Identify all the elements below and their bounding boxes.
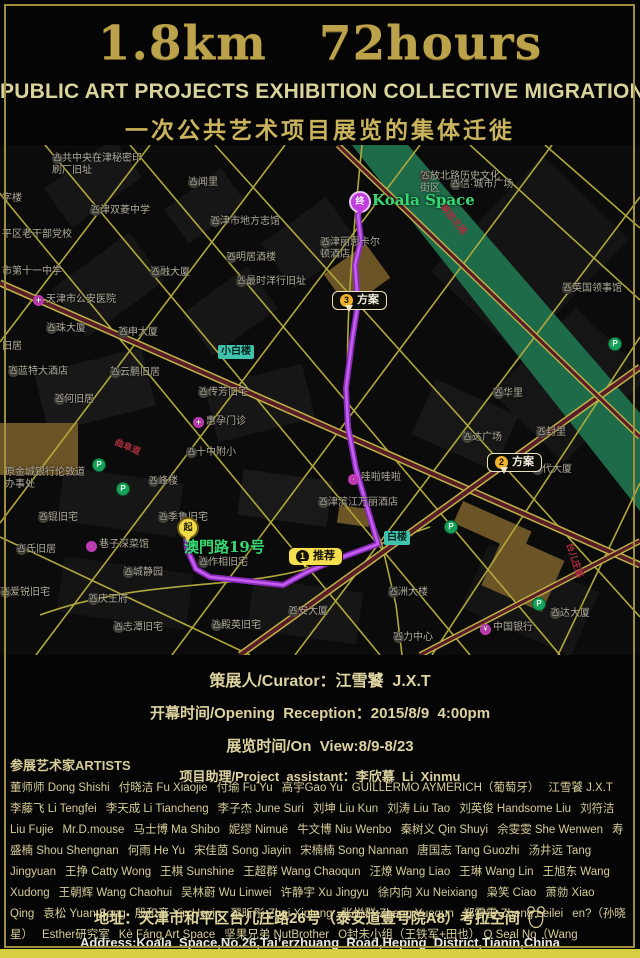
poi-icon: 凸	[211, 620, 222, 631]
map-poi-label: 凸张作相旧宅	[198, 557, 248, 569]
artist-name: 刘涛 Liu Tao	[387, 803, 450, 815]
artist-name: 高宇Gao Yu	[282, 782, 343, 794]
artist-name: 王朝辉 Wang Chaohui	[59, 887, 172, 899]
map-poi-label: 凸曹锟旧宅	[38, 512, 78, 524]
artist-name: 王琳 Wang Lin	[459, 866, 533, 878]
map-poi-label: 凸达闻里	[188, 177, 218, 189]
artist-name: 徐内向 Xu Neixiang	[378, 887, 478, 899]
map-poi-label: 市第十一中学	[2, 266, 62, 278]
marker-plan-2: 2 方案	[487, 453, 542, 472]
poi-icon: 凸	[16, 544, 27, 555]
artist-name: 秦树义 Qin Shuyi	[401, 824, 489, 836]
artist-name: 宋楠楠 Song Nannan	[300, 845, 408, 857]
artist-name: 王挣 Catty Wong	[65, 866, 151, 878]
map-poi-label: 凸天津双菱中学	[90, 205, 150, 217]
address-chinese: 地址：天津市和平区台儿庄路26号（泰安道壹号院A8）考拉空间	[0, 905, 640, 929]
exhibition-title: 1.8km 72hours	[0, 0, 640, 71]
artist-name: 佘雯雯 She Wenwen	[497, 824, 603, 836]
parking-icon: P	[92, 458, 106, 472]
poi-icon: 凸	[186, 447, 197, 458]
map-poi-label: 凸云峰楼	[148, 476, 178, 488]
map-poi-label: 凸茂申大厦	[118, 327, 158, 339]
poi-icon: 凸	[236, 276, 247, 287]
poi-icon: 凸	[198, 387, 209, 398]
curator-line: 策展人/Curator：江雪饕 J.X.T	[0, 667, 640, 691]
poi-icon: 凸	[288, 606, 299, 617]
subtitle-english: PUBLIC ART PROJECTS EXHIBITION COLLECTIV…	[0, 80, 640, 104]
med-icon: +	[193, 417, 204, 428]
artist-name: 妮缪 Nimuë	[229, 824, 288, 836]
map-poi-label: 凸新云鹏旧居	[110, 367, 160, 379]
map-poi-label: 凸明华里	[493, 388, 523, 400]
map-poi-label: 字楼	[2, 193, 22, 205]
map-poi-label: ¥中国银行	[480, 622, 533, 635]
artist-name: 宋佳茵 Song Jiayin	[194, 845, 291, 857]
artist-name: 刘英俊 Handsome Liu	[459, 803, 571, 815]
poi-icon: 凸	[8, 366, 19, 377]
poi-icon: 凸	[38, 512, 49, 523]
map-labels: 凸中共中央在津秘密印刷厂旧址凸达闻里凸解放北路历史文化街区凸中信·城市广场字楼凸…	[0, 145, 640, 655]
poi-icon: 凸	[536, 427, 547, 438]
destination-pin: 终	[349, 191, 371, 213]
map-poi-label: 平区老干部党校	[2, 229, 72, 241]
poi-icon: 凸	[462, 432, 473, 443]
map-poi-label: ·哇啦哇啦	[348, 472, 401, 485]
marker-plan-2-label: 方案	[512, 456, 534, 469]
map-poi-label: 凸海珠大厦	[46, 323, 86, 335]
poi-icon: 凸	[226, 252, 237, 263]
poi-icon: 凸	[150, 267, 161, 278]
food-icon: ·	[86, 541, 97, 552]
artist-name: 牛文博 Niu Wenbo	[297, 824, 391, 836]
poi-icon: 凸	[54, 394, 65, 405]
marker-plan-3-number: 3	[340, 294, 353, 307]
marker-recommended-number: 1	[296, 550, 309, 563]
marker-recommended: 1 推荐	[288, 547, 343, 566]
artist-name: 汪燎 Wang Liao	[369, 866, 450, 878]
map-poi-label: 凸富力中心	[393, 632, 433, 644]
poi-icon: 凸	[52, 153, 63, 164]
poi-icon: 凸	[318, 497, 329, 508]
koala-icon	[526, 905, 546, 929]
artist-name: 付瑜 Fu Yu	[217, 782, 273, 794]
header: 1.8km 72hours PUBLIC ART PROJECTS EXHIBI…	[0, 0, 640, 145]
map-poi-label: ·巷子深菜馆	[86, 539, 149, 552]
poi-icon: 凸	[450, 179, 461, 190]
poi-icon: 凸	[188, 177, 199, 188]
poi-icon: 凸	[148, 476, 159, 487]
map-poi-label: 凸中信·城市广场	[450, 179, 513, 191]
map-poi-label: 凸富蓝特大酒店	[8, 366, 68, 378]
map-poi-label: +天津市公安医院	[33, 294, 116, 306]
street-name-label: 曲阜道	[113, 435, 143, 458]
map-poi-label: 凸开封里	[536, 427, 566, 439]
poi-icon: 凸	[393, 632, 404, 643]
poi-icon: 凸	[113, 622, 124, 633]
artist-name: 付晓洁 Fu Xiaojie	[119, 782, 208, 794]
parking-icon: P	[444, 520, 458, 534]
poi-icon: 凸	[493, 388, 504, 399]
map-poi-label: 凸孙殿英旧宅	[211, 620, 261, 632]
parking-icon: P	[608, 337, 622, 351]
artist-name: 李天成 Li Tiancheng	[106, 803, 209, 815]
address-english: Address:Koala Space,No.26,Tai’erzhuang R…	[0, 935, 640, 950]
artist-name: 李子杰 June Suri	[218, 803, 304, 815]
map-poi-label: 凸汇融大厦	[150, 267, 190, 279]
map-poi-label: 凸津城静园	[123, 567, 163, 579]
map-poi-label: 凸孙传芳旧宅	[198, 387, 248, 399]
artist-name: 王超群 Wang Chaoqun	[243, 866, 360, 878]
marker-recommended-label: 推荐	[313, 550, 335, 563]
bank-icon: ¥	[480, 624, 491, 635]
map-poi-label: 凸李氏旧居	[16, 544, 56, 556]
subtitle-chinese: 一次公共艺术项目展览的集体迁徙	[0, 111, 640, 145]
map-poi-label: 凸天津滨江万丽酒店	[318, 497, 398, 509]
artist-name: 李藤飞 Li Tengfei	[10, 803, 97, 815]
map-poi-label: 凸天津市地方志馆	[210, 216, 280, 228]
address-section: 地址：天津市和平区台儿庄路26号（泰安道壹号院A8）考拉空间 Address:K…	[0, 905, 640, 950]
map-poi-label: 凸中共中央在津秘密印刷厂旧址	[52, 153, 144, 176]
food-icon: ·	[348, 474, 359, 485]
map-poi-label: 凸二十中附小	[186, 447, 236, 459]
bottom-accent-bar	[0, 949, 640, 958]
station-label: 白楼	[384, 531, 410, 545]
origin-pin: 起	[177, 517, 199, 539]
artists-heading: 参展艺术家ARTISTS	[10, 755, 630, 774]
route-map: 凸中共中央在津秘密印刷厂旧址凸达闻里凸解放北路历史文化街区凸中信·城市广场字楼凸…	[0, 145, 640, 655]
poi-icon: 凸	[46, 323, 57, 334]
poi-icon: 凸	[320, 237, 331, 248]
poi-icon: 凸	[88, 594, 99, 605]
poi-icon: 凸	[110, 367, 121, 378]
marker-plan-2-number: 2	[495, 456, 508, 469]
poi-icon: 凸	[550, 608, 561, 619]
artist-name: 王棋 Sunshine	[160, 866, 234, 878]
onview-line: 展览时间/On View:8/9-8/23	[0, 735, 640, 756]
map-poi-label: 原金城银行伦敦道办事处	[5, 467, 87, 490]
map-poi-label: 旧居	[2, 341, 22, 353]
map-poi-label: 凸泰达大厦	[550, 608, 590, 620]
poster: 1.8km 72hours PUBLIC ART PROJECTS EXHIBI…	[0, 0, 640, 958]
poi-icon: 凸	[118, 327, 129, 338]
marker-plan-3: 3 方案	[332, 291, 387, 310]
poi-icon: 凸	[388, 587, 399, 598]
map-poi-label: 凸美最时洋行旧址	[236, 276, 306, 288]
map-poi-label: 凸正明居酒楼	[226, 252, 276, 264]
artist-name: 许静宇 Xu Jingyu	[281, 887, 369, 899]
poi-icon: 凸	[210, 216, 221, 227]
marker-plan-3-label: 方案	[357, 294, 379, 307]
station-label: 小白楼	[218, 345, 254, 359]
artist-name: 唐国志 Tang Guozhi	[417, 845, 519, 857]
map-poi-label: 凸原英国领事馆	[562, 283, 622, 295]
parking-icon: P	[532, 597, 546, 611]
artist-name: 吴林蔚 Wu Linwei	[181, 887, 272, 899]
artist-name: Mr.D.mouse	[62, 824, 124, 836]
map-poi-label: 凸平安大厦	[288, 606, 328, 618]
aomen-road-label: 澳門路19号	[184, 536, 265, 557]
map-poi-label: 凸那何旧居	[54, 394, 94, 406]
poi-icon: 凸	[123, 567, 134, 578]
artist-name: 刘坤 Liu Kun	[313, 803, 378, 815]
artist-name: 何雨 He Yu	[128, 845, 185, 857]
poi-icon: 凸	[158, 512, 169, 523]
poi-icon: 凸	[90, 205, 101, 216]
artist-name: GUILLERMO AYMERICH（葡萄牙）	[352, 782, 540, 794]
koala-space-label: Koala Space	[372, 191, 475, 209]
med-icon: +	[33, 295, 44, 306]
map-poi-label: 凸原庆王府	[88, 594, 128, 606]
poi-icon: 凸	[562, 283, 573, 294]
map-poi-label: 凸李爱锐旧宅	[0, 587, 50, 599]
poi-icon: 凸	[420, 171, 431, 182]
map-poi-label: 凸天津丽思卡尔顿酒店	[320, 237, 382, 260]
map-poi-label: 凸信达广场	[462, 432, 502, 444]
map-poi-label: 凸张志潭旧宅	[113, 622, 163, 634]
street-name-label: 台儿庄路	[564, 541, 587, 579]
parking-icon: P	[116, 482, 130, 496]
artist-name: 江雪饕 J.X.T	[548, 782, 613, 794]
map-poi-label: 凸邦洲大楼	[388, 587, 428, 599]
artist-name: 董师师 Dong Shishi	[10, 782, 110, 794]
map-poi-label: +惠孕门诊	[193, 416, 246, 428]
poi-icon: 凸	[0, 587, 11, 598]
artist-name: 枭笑 Ciao	[486, 887, 536, 899]
poi-icon: 凸	[198, 557, 209, 568]
artist-name: 马士博 Ma Shibo	[133, 824, 219, 836]
opening-line: 开幕时间/Opening Reception：2015/8/9 4:00pm	[0, 702, 640, 723]
